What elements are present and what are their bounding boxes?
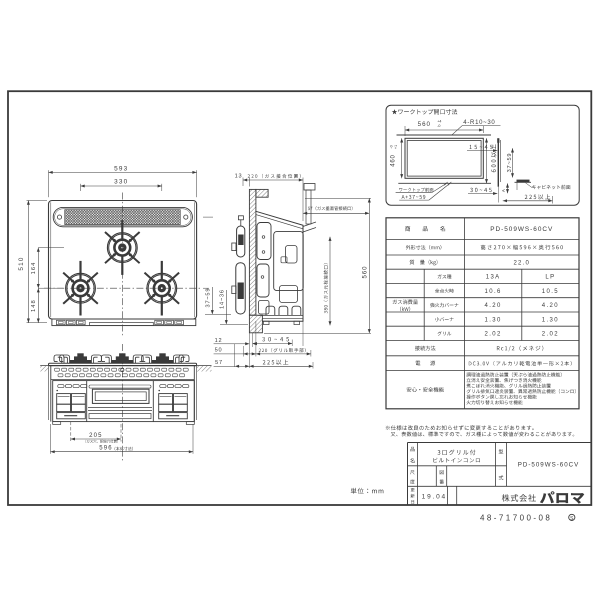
- svg-text:560: 560: [362, 265, 368, 278]
- svg-text:13A: 13A: [486, 275, 501, 281]
- svg-text:10.6: 10.6: [485, 289, 502, 295]
- svg-text:510: 510: [18, 256, 25, 270]
- svg-text:-0: -0: [390, 145, 394, 148]
- svg-text:48-71700-08: 48-71700-08: [480, 513, 552, 522]
- svg-text:2.02: 2.02: [485, 332, 502, 338]
- svg-text:2.02: 2.02: [542, 332, 559, 338]
- svg-text:205: 205: [89, 433, 103, 439]
- svg-text:593: 593: [114, 166, 128, 173]
- svg-text:22.0: 22.0: [514, 260, 530, 266]
- svg-text:330: 330: [114, 178, 128, 185]
- svg-text:4.20: 4.20: [485, 303, 502, 309]
- svg-text:+1: +1: [394, 145, 398, 149]
- svg-text:19.04: 19.04: [422, 493, 447, 500]
- svg-text:1.30: 1.30: [485, 317, 502, 323]
- svg-text:37~59: 37~59: [205, 288, 211, 308]
- svg-text:460: 460: [391, 154, 397, 166]
- svg-text:4.20: 4.20: [542, 303, 559, 309]
- svg-text:10.5: 10.5: [542, 289, 559, 295]
- svg-text:1.30: 1.30: [542, 317, 559, 323]
- svg-text:12: 12: [215, 338, 223, 344]
- svg-text:560: 560: [418, 121, 431, 128]
- svg-text:LP: LP: [545, 275, 555, 281]
- svg-text:596: 596: [99, 446, 113, 452]
- svg-text:50: 50: [215, 348, 223, 354]
- svg-text:-0: -0: [437, 124, 440, 128]
- svg-text:13: 13: [235, 174, 243, 180]
- svg-text:A: A: [501, 189, 506, 192]
- svg-text:57: 57: [215, 360, 223, 366]
- svg-text:PD-509WS-60CV: PD-509WS-60CV: [518, 461, 580, 468]
- svg-text:PD-509WS-60CV: PD-509WS-60CV: [490, 226, 553, 233]
- svg-text:37~59: 37~59: [507, 153, 513, 173]
- svg-text:164: 164: [31, 262, 37, 275]
- svg-text:4-R10~30: 4-R10~30: [463, 120, 495, 126]
- svg-text:14~36: 14~36: [219, 289, 225, 309]
- svg-text:148: 148: [31, 299, 37, 312]
